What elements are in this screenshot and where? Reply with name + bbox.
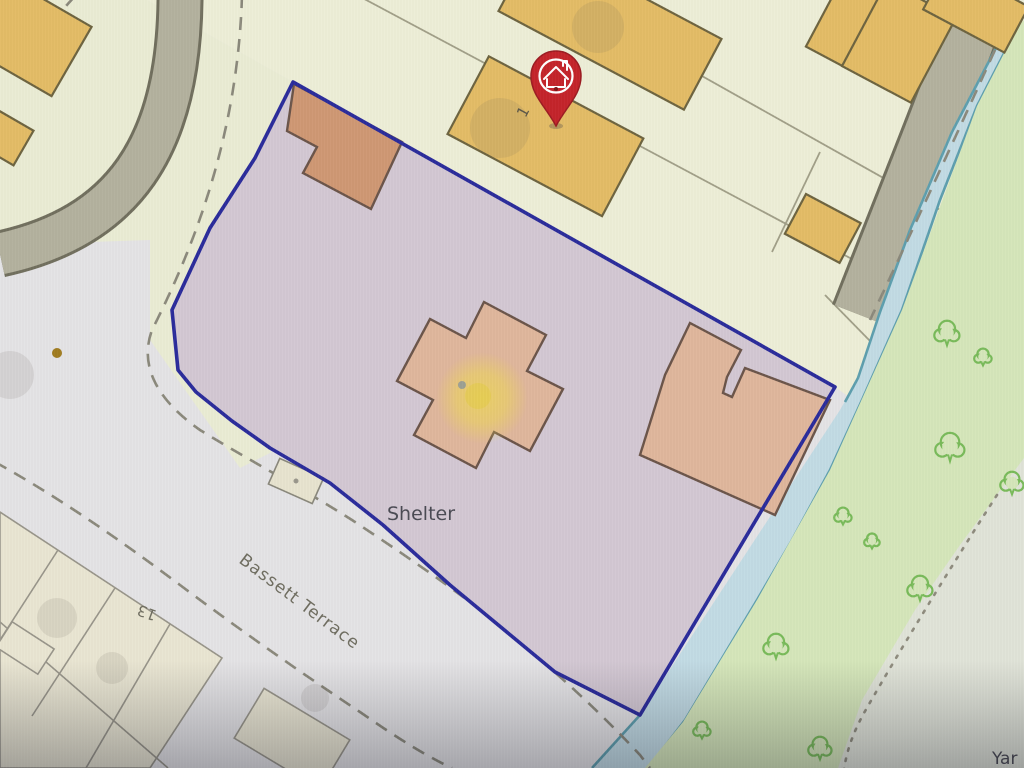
map-canvas[interactable]: Shelter Bassett Terrace 13 1 Yar [0,0,1024,768]
highlight-core [465,383,491,409]
screen-smudge [572,1,624,53]
survey-dot [458,381,466,389]
yard-label: Yar [991,749,1017,768]
screen-smudge [37,598,77,638]
map-svg[interactable]: Shelter Bassett Terrace 13 1 Yar [0,0,1024,768]
boundary-marker-dot [52,348,62,358]
screen-smudge [301,684,329,712]
shelter-label: Shelter [387,503,455,525]
screen-smudge [96,652,128,684]
